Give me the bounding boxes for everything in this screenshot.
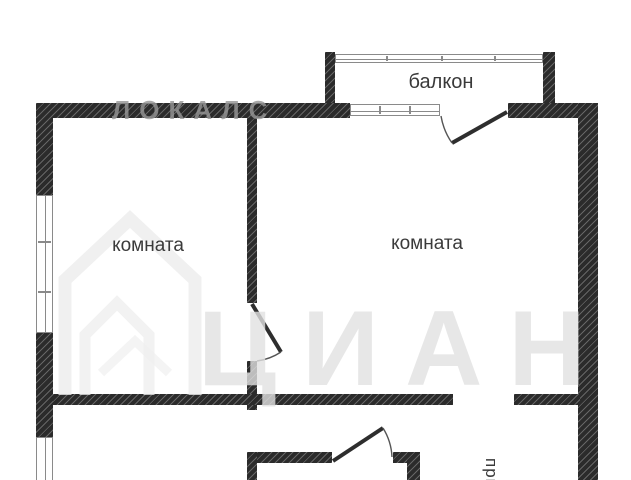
kitchen-door-leaf [333, 428, 383, 461]
room-right-label: комната [365, 232, 489, 255]
kitchen-door-arc [383, 428, 392, 457]
balcony-door-leaf [452, 112, 507, 143]
floor-plan: ЛОКАЛС ЦИАН балкон комната комната прихо… [0, 0, 631, 480]
room-divider-door-arc [257, 352, 281, 361]
balcony-label: балкон [379, 70, 503, 94]
balcony-door-arc [441, 116, 452, 143]
hallway-label: прихожая [481, 440, 501, 480]
room-divider-door-leaf [252, 304, 281, 352]
room-left-label: комната [86, 234, 210, 257]
